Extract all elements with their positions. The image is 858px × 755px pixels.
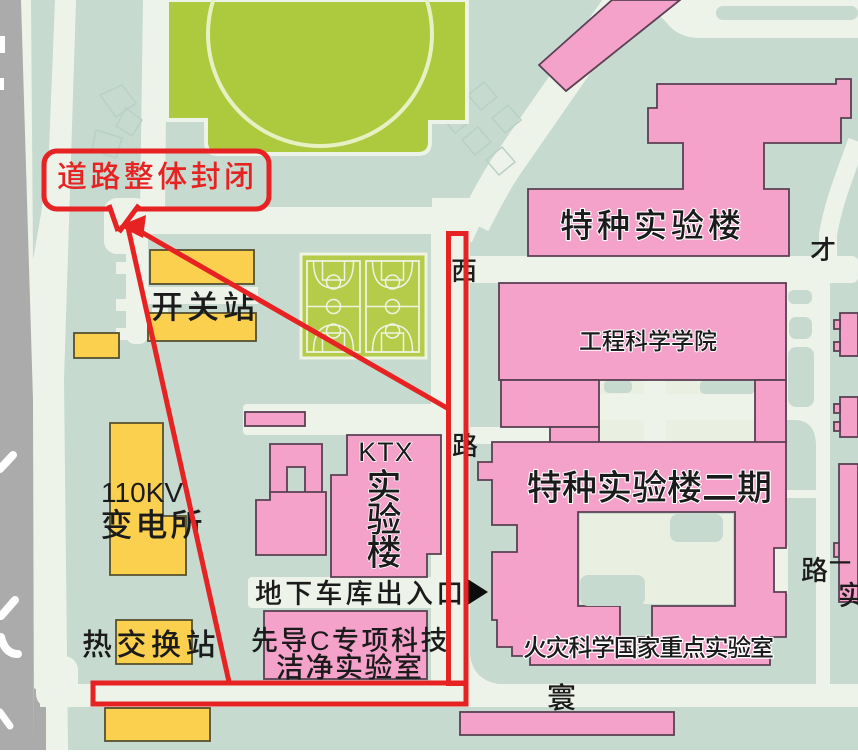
- svg-text:才: 才: [810, 230, 836, 267]
- svg-text:热交换站: 热交换站: [82, 620, 220, 664]
- svg-text:实: 实: [838, 574, 858, 613]
- svg-text:火灾科学国家重点实验室: 火灾科学国家重点实验室: [523, 628, 773, 663]
- svg-text:特种实验楼二期: 特种实验楼二期: [527, 460, 772, 511]
- svg-text:特种实验楼: 特种实验楼: [560, 199, 745, 247]
- svg-text:地下车库出入口: 地下车库出入口: [255, 572, 466, 611]
- svg-text:寰: 寰: [547, 675, 576, 717]
- svg-text:道路整体封闭: 道路整体封闭: [57, 152, 257, 196]
- svg-text:工程科学学院: 工程科学学院: [579, 322, 717, 356]
- svg-text:楼: 楼: [366, 525, 401, 576]
- svg-text:路: 路: [801, 549, 828, 588]
- svg-text:洁净实验室: 洁净实验室: [276, 646, 424, 686]
